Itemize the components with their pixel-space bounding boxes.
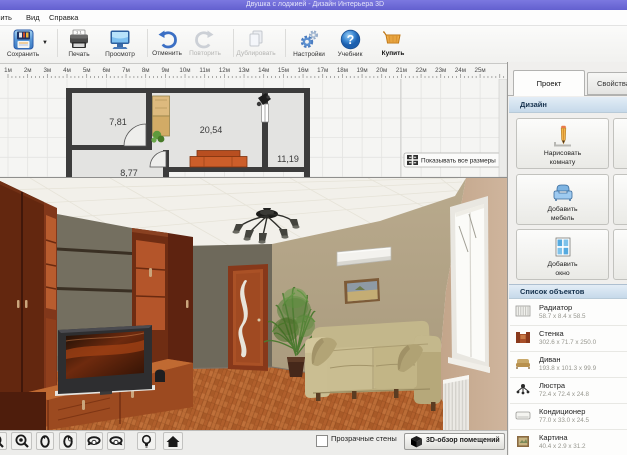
svg-text:22м: 22м <box>416 67 427 74</box>
svg-text:5м: 5м <box>83 67 91 74</box>
svg-text:13м: 13м <box>238 67 249 74</box>
svg-text:9м: 9м <box>162 67 170 74</box>
svg-text:18м: 18м <box>337 67 348 74</box>
svg-text:2м: 2м <box>24 67 32 74</box>
svg-text:?: ? <box>346 33 354 47</box>
svg-text:14м: 14м <box>258 67 269 74</box>
svg-text:20м: 20м <box>376 67 387 74</box>
svg-text:15м: 15м <box>278 67 289 74</box>
svg-text:23м: 23м <box>435 67 446 74</box>
svg-text:24м: 24м <box>455 67 466 74</box>
svg-text:17м: 17м <box>317 67 328 74</box>
svg-text:16м: 16м <box>298 67 309 74</box>
svg-text:19м: 19м <box>357 67 368 74</box>
svg-text:11,19: 11,19 <box>277 154 299 164</box>
svg-text:8,77: 8,77 <box>120 168 138 177</box>
svg-text:7м: 7м <box>122 67 130 74</box>
svg-text:7,81: 7,81 <box>109 117 127 127</box>
svg-text:11м: 11м <box>199 67 210 74</box>
svg-text:8м: 8м <box>142 67 150 74</box>
svg-text:12м: 12м <box>219 67 230 74</box>
svg-text:20,54: 20,54 <box>200 125 223 135</box>
svg-text:4м: 4м <box>63 67 71 74</box>
svg-text:25м: 25м <box>475 67 486 74</box>
svg-text:Показывать все размеры: Показывать все размеры <box>421 158 496 165</box>
svg-text:6м: 6м <box>103 67 111 74</box>
svg-text:3м: 3м <box>43 67 51 74</box>
svg-text:1м: 1м <box>4 67 12 74</box>
svg-text:10м: 10м <box>179 67 190 74</box>
svg-text:21м: 21м <box>396 67 407 74</box>
svg-text:1 1: 1 1 <box>76 30 82 35</box>
